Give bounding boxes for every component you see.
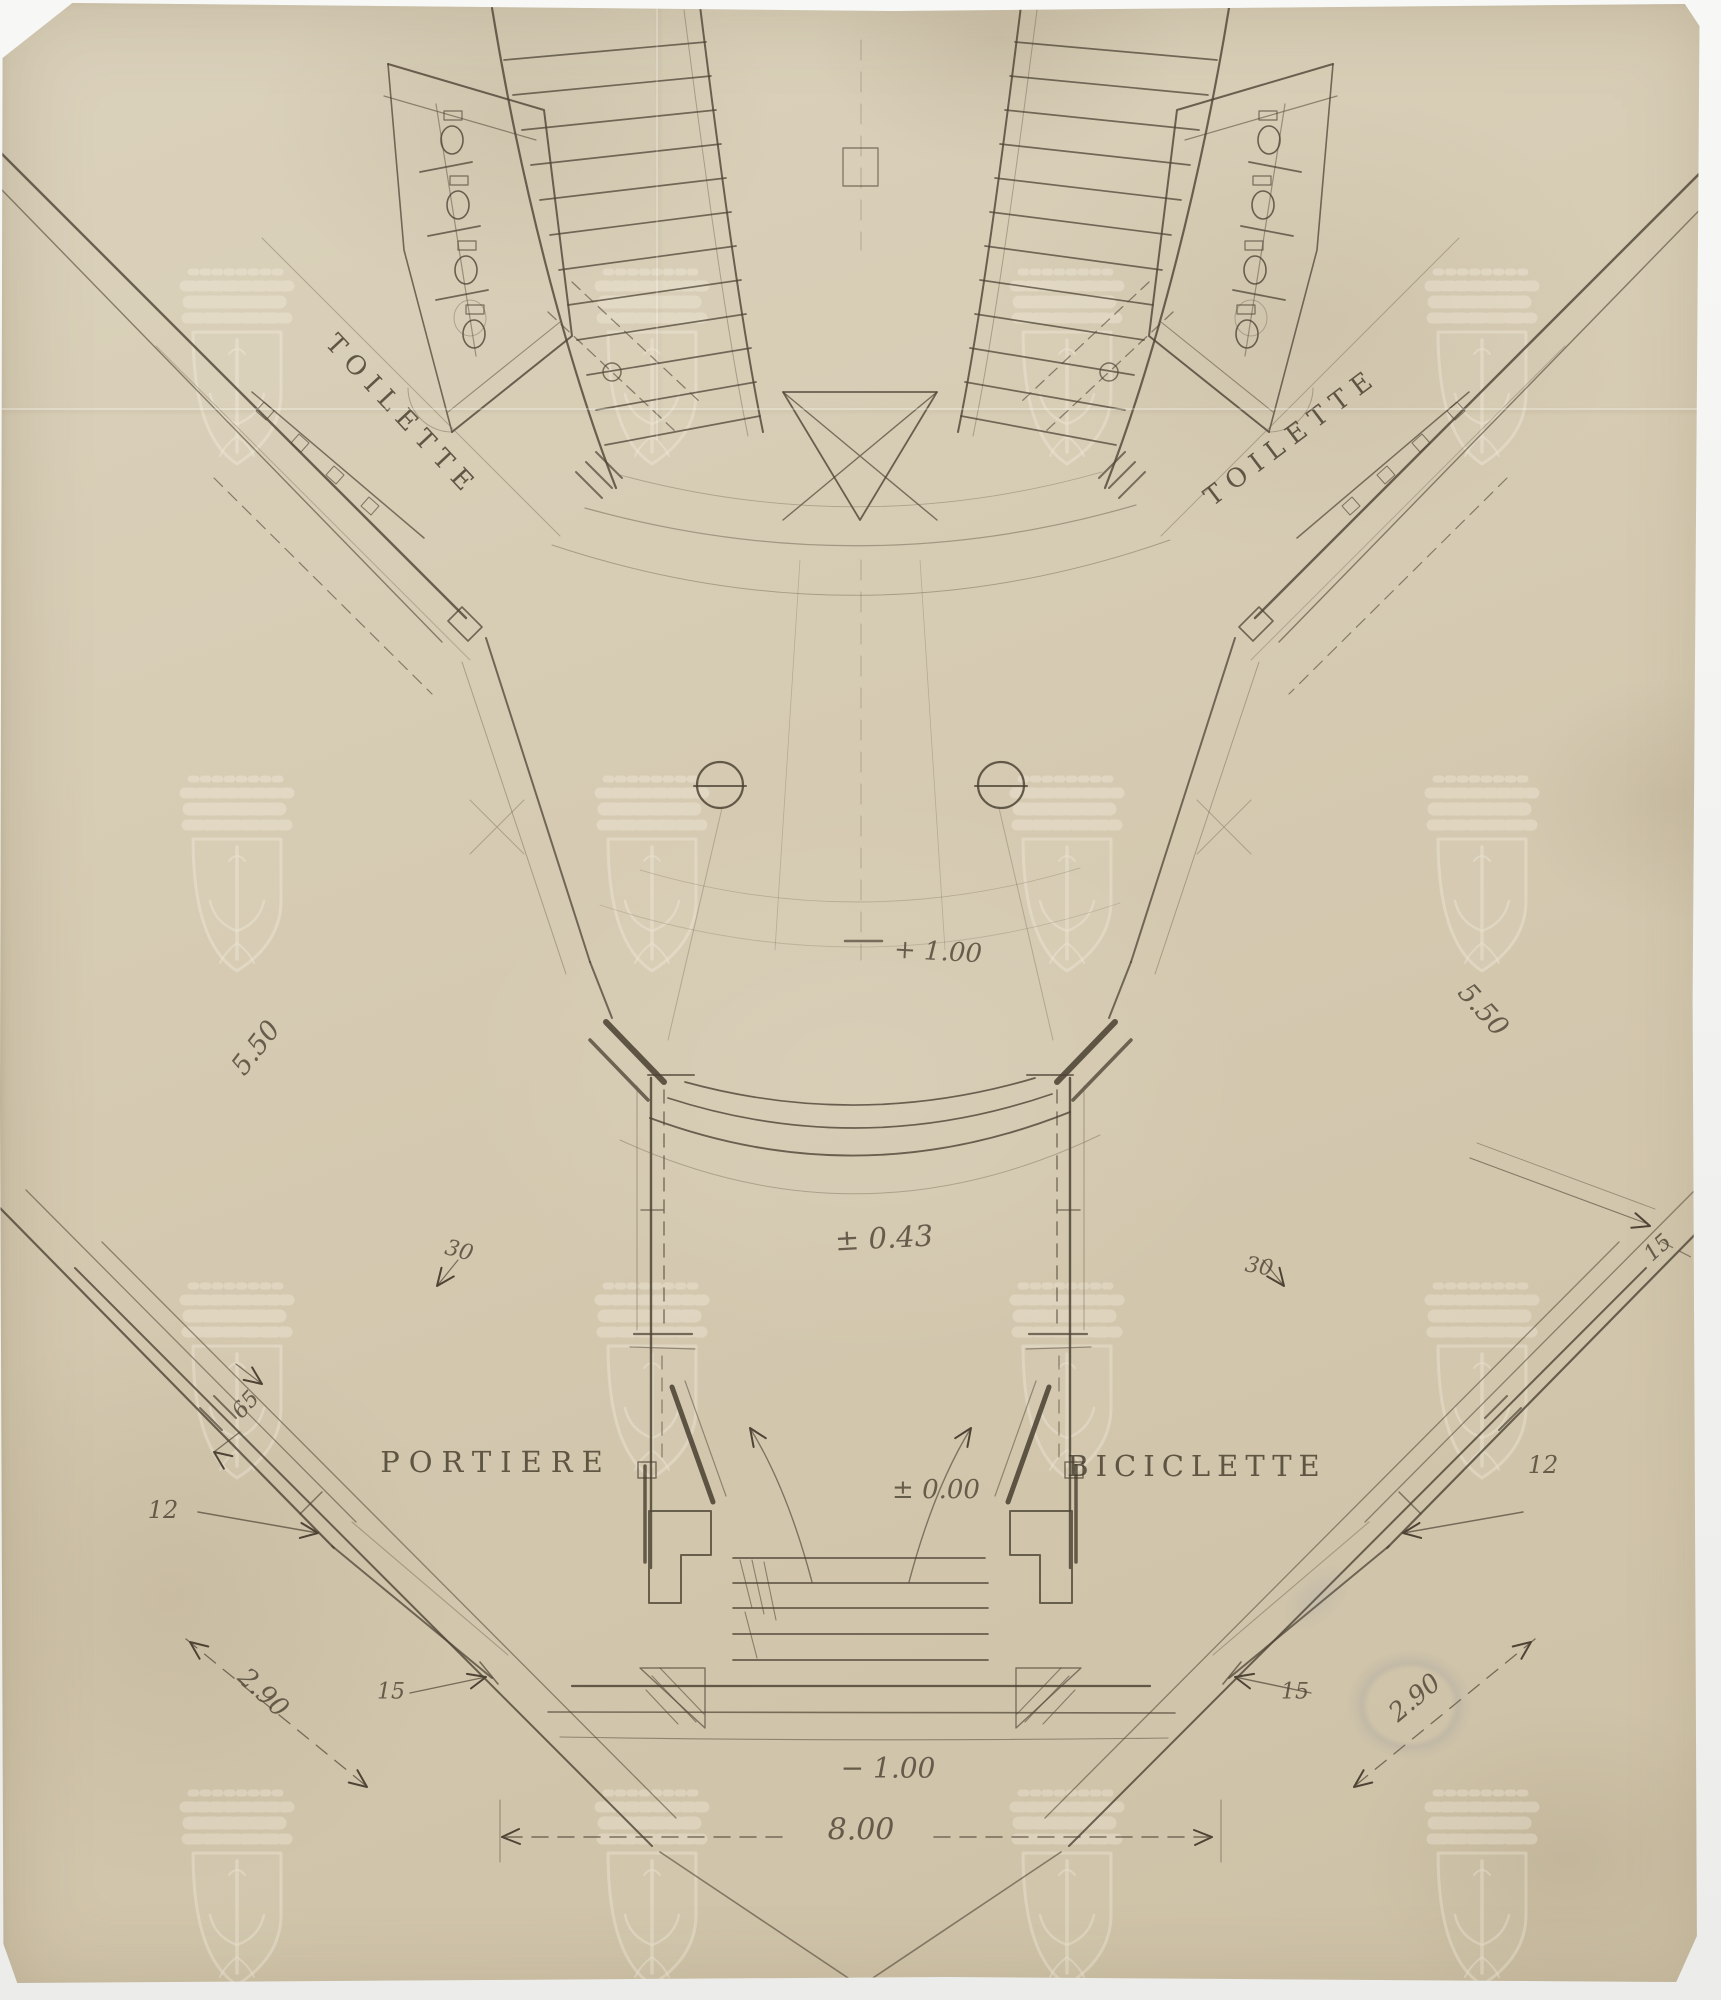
plan-center <box>502 40 1212 1845</box>
room-label-biciclette: BICICLETTE <box>1067 1449 1326 1483</box>
dim-wall-12-right: 12 <box>1528 1451 1559 1479</box>
level-mark-stair-landing: + 1.00 <box>893 935 982 970</box>
curved-entrance-steps <box>620 1078 1100 1194</box>
room-label-portiere: PORTIERE <box>380 1445 612 1479</box>
level-mark-ground: ± 0.00 <box>892 1475 980 1505</box>
level-mark-vestibule: ± 0.43 <box>834 1218 934 1257</box>
dim-wall-30-right: 30 <box>1243 1252 1275 1281</box>
dim-step-15-right: 15 <box>1281 1680 1309 1705</box>
entry-steps <box>548 1558 1175 1740</box>
drawing-sheet: TOILETTE TOILETTE PORTIERE BICICLETTE + … <box>0 0 1721 2000</box>
dimension-15-upper-right <box>1470 1143 1712 1268</box>
paper-crease-vertical <box>656 0 658 440</box>
level-mark-street: − 1.00 <box>841 1752 936 1785</box>
paper-crease-horizontal <box>0 408 1721 410</box>
scan-backdrop: TOILETTE TOILETTE PORTIERE BICICLETTE + … <box>0 0 1721 2000</box>
dim-overall-width: 8.00 <box>828 1813 895 1848</box>
dim-step-15-left: 15 <box>377 1680 405 1705</box>
faded-round-stamp <box>1330 1635 1490 1775</box>
dim-wall-12-left: 12 <box>148 1496 179 1524</box>
